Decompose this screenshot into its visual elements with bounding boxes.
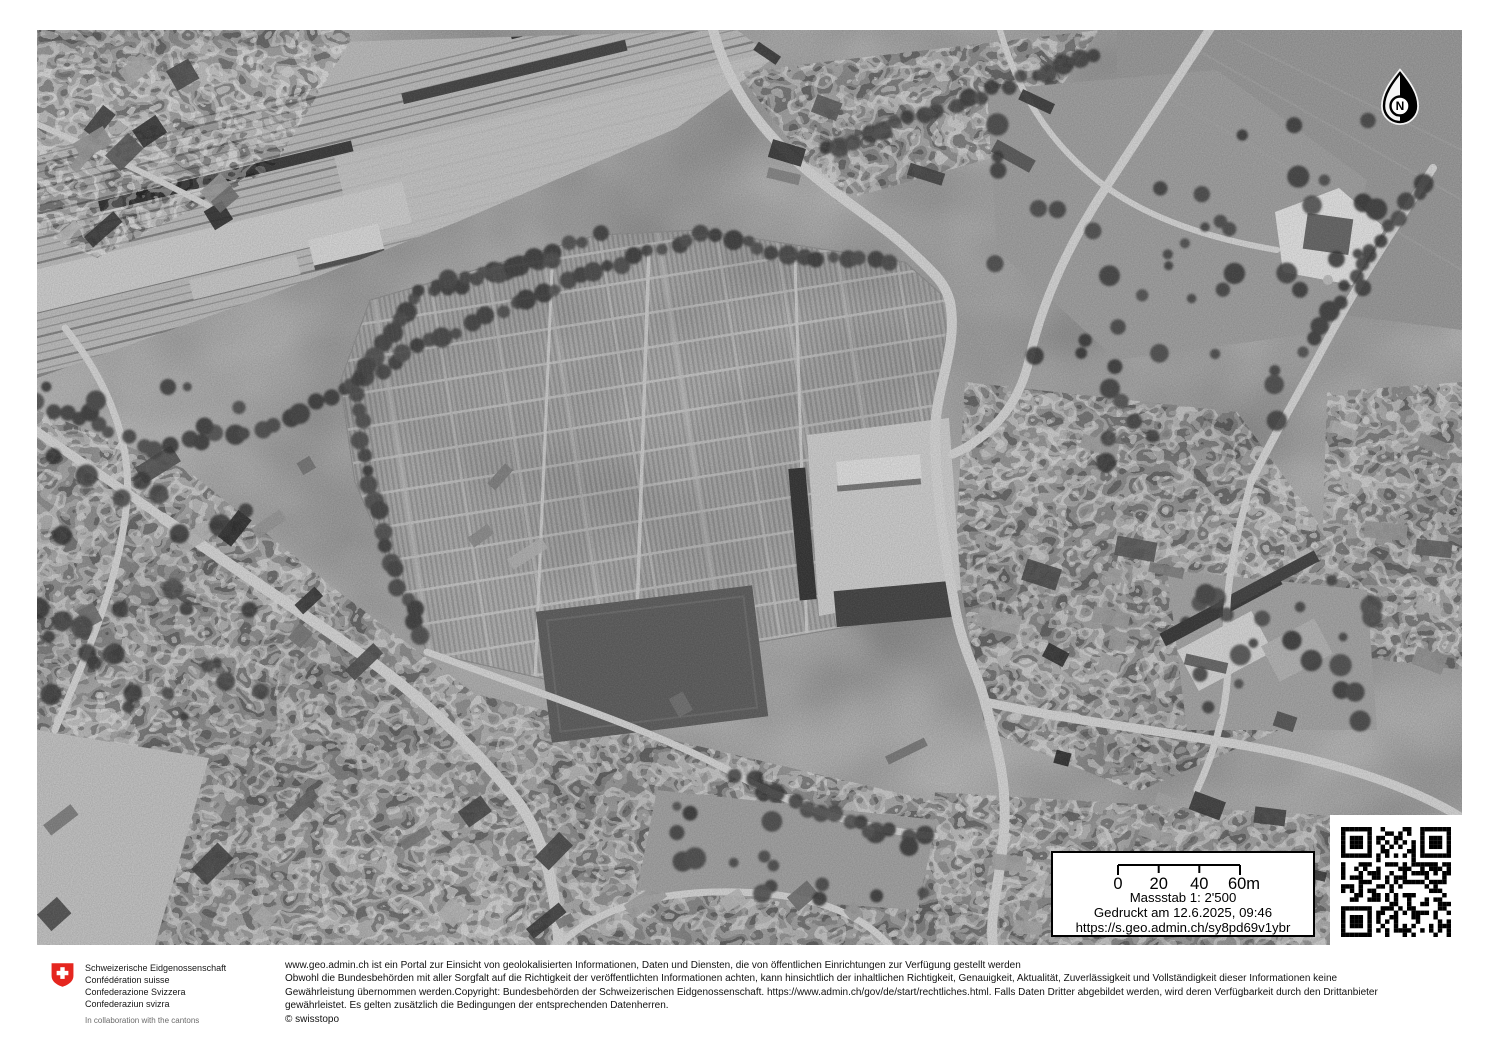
north-label: N xyxy=(1396,99,1405,113)
scale-tick-0: 0 xyxy=(1113,875,1122,890)
logo-line-it: Confederazione Svizzera xyxy=(85,986,226,998)
disclaimer-line-2: Obwohl die Bundesbehörden mit aller Sorg… xyxy=(285,972,1499,985)
logo-line-de: Schweizerische Eidgenossenschaft xyxy=(85,962,226,974)
qr-matrix xyxy=(1341,827,1451,937)
scale-box: 0 20 40 60m Massstab 1: 2'500 Gedruckt a… xyxy=(1051,851,1315,937)
logo-line-rm: Confederaziun svizra xyxy=(85,998,226,1010)
swiss-logo: Schweizerische Eidgenossenschaft Confédé… xyxy=(50,962,226,1027)
disclaimer-text: www.geo.admin.ch ist ein Portal zur Eins… xyxy=(285,959,1499,1026)
scale-tick-40: 40 xyxy=(1190,875,1208,890)
logo-collab-line: In collaboration with the cantons xyxy=(85,1015,226,1027)
logo-line-fr: Confédération suisse xyxy=(85,974,226,986)
copyright-line: © swisstopo xyxy=(285,1013,1499,1026)
print-page: { "overlay": { "north_label": "N", "scal… xyxy=(0,0,1500,1060)
scale-bar: 0 20 40 60m xyxy=(1051,856,1315,890)
swiss-shield-icon xyxy=(50,962,75,988)
scale-tick-20: 20 xyxy=(1150,875,1168,890)
scale-massstab: Massstab 1: 2'500 xyxy=(1130,890,1237,905)
disclaimer-line-1: www.geo.admin.ch ist ein Portal zur Eins… xyxy=(285,959,1499,972)
disclaimer-line-4: gewährleistet. Es gelten zusätzlich die … xyxy=(285,999,1499,1012)
qr-code xyxy=(1330,815,1462,948)
aerial-photo-canvas: N xyxy=(37,30,1462,945)
print-timestamp: Gedruckt am 12.6.2025, 09:46 xyxy=(1094,905,1272,920)
share-url: https://s.geo.admin.ch/sy8pd69v1ybr xyxy=(1076,920,1291,935)
scale-tick-60: 60m xyxy=(1228,875,1260,890)
disclaimer-line-3: Gewährleistung übernommen werden.Copyrig… xyxy=(285,986,1499,999)
aerial-photo: N xyxy=(37,30,1462,945)
